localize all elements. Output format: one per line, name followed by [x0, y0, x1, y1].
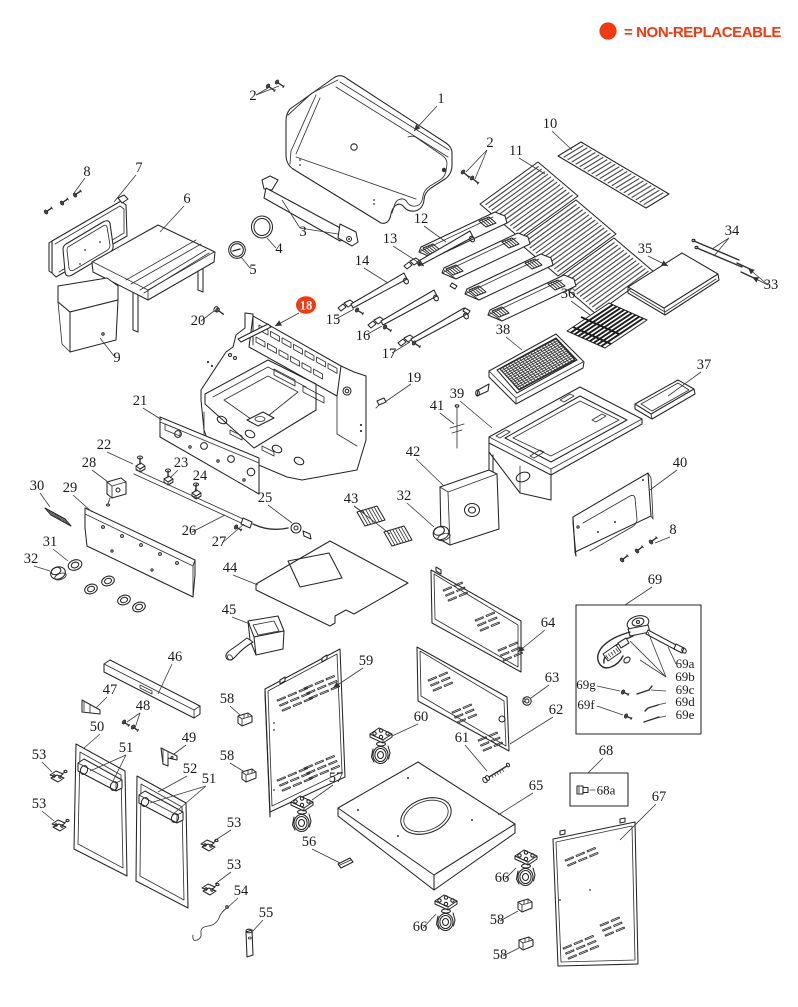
- svg-text:51: 51: [202, 771, 217, 787]
- svg-text:58: 58: [493, 947, 508, 963]
- svg-text:41: 41: [430, 398, 445, 414]
- svg-text:19: 19: [407, 370, 422, 386]
- svg-text:65: 65: [529, 778, 544, 794]
- svg-text:68: 68: [599, 743, 614, 759]
- svg-text:14: 14: [355, 253, 370, 269]
- svg-text:18: 18: [300, 299, 313, 313]
- svg-text:30: 30: [30, 478, 45, 494]
- svg-text:27: 27: [212, 534, 227, 550]
- svg-text:50: 50: [90, 719, 105, 735]
- svg-text:51: 51: [119, 740, 134, 756]
- svg-text:48: 48: [136, 698, 151, 714]
- svg-text:53: 53: [32, 796, 47, 812]
- svg-text:24: 24: [193, 468, 208, 484]
- svg-text:3: 3: [299, 224, 306, 240]
- svg-text:53: 53: [32, 747, 47, 763]
- svg-text:69g: 69g: [576, 677, 596, 692]
- svg-text:15: 15: [326, 312, 341, 328]
- svg-text:42: 42: [406, 444, 421, 460]
- svg-text:60: 60: [414, 709, 429, 725]
- svg-text:23: 23: [174, 455, 189, 471]
- svg-text:56: 56: [302, 834, 317, 850]
- svg-text:16: 16: [356, 328, 371, 344]
- svg-text:33: 33: [764, 277, 779, 293]
- svg-text:28: 28: [82, 455, 97, 471]
- svg-text:25: 25: [258, 490, 273, 506]
- svg-text:69f: 69f: [577, 697, 595, 712]
- svg-text:66: 66: [495, 870, 510, 886]
- svg-text:8: 8: [669, 522, 676, 538]
- svg-text:2: 2: [486, 135, 493, 151]
- svg-text:68a: 68a: [597, 783, 616, 798]
- svg-text:2: 2: [249, 88, 256, 104]
- svg-text:7: 7: [135, 160, 142, 176]
- svg-text:11: 11: [509, 143, 523, 159]
- svg-text:61: 61: [455, 730, 470, 746]
- svg-text:39: 39: [450, 386, 465, 402]
- svg-text:57: 57: [329, 770, 344, 786]
- svg-text:53: 53: [227, 815, 242, 831]
- svg-text:4: 4: [275, 241, 283, 257]
- svg-text:64: 64: [541, 615, 556, 631]
- svg-text:35: 35: [638, 241, 653, 257]
- svg-text:47: 47: [103, 682, 118, 698]
- svg-text:13: 13: [383, 231, 398, 247]
- svg-text:= NON-REPLACEABLE: = NON-REPLACEABLE: [624, 24, 781, 41]
- svg-text:1: 1: [437, 91, 444, 107]
- svg-text:32: 32: [24, 551, 39, 567]
- svg-text:40: 40: [673, 455, 688, 471]
- svg-text:20: 20: [191, 313, 206, 329]
- svg-text:17: 17: [382, 346, 397, 362]
- svg-text:58: 58: [220, 748, 235, 764]
- svg-text:58: 58: [490, 912, 505, 928]
- svg-text:22: 22: [97, 437, 112, 453]
- svg-text:53: 53: [227, 857, 242, 873]
- svg-text:10: 10: [543, 116, 558, 132]
- svg-text:59: 59: [359, 653, 374, 669]
- svg-text:46: 46: [168, 649, 183, 665]
- svg-text:69e: 69e: [676, 707, 695, 722]
- svg-text:43: 43: [344, 491, 359, 507]
- svg-text:69: 69: [648, 572, 663, 588]
- svg-text:9: 9: [113, 350, 120, 366]
- svg-text:36: 36: [561, 286, 576, 302]
- svg-text:6: 6: [183, 191, 190, 207]
- svg-text:45: 45: [222, 602, 237, 618]
- svg-text:49: 49: [182, 730, 197, 746]
- svg-text:67: 67: [652, 789, 667, 805]
- svg-text:62: 62: [549, 702, 564, 718]
- svg-text:8: 8: [83, 164, 90, 180]
- svg-text:38: 38: [496, 322, 511, 338]
- svg-text:12: 12: [414, 211, 429, 227]
- svg-text:44: 44: [223, 560, 238, 576]
- svg-text:32: 32: [397, 488, 412, 504]
- svg-text:31: 31: [43, 534, 58, 550]
- svg-text:52: 52: [183, 761, 198, 777]
- svg-text:54: 54: [234, 883, 249, 899]
- svg-text:21: 21: [133, 393, 148, 409]
- svg-text:58: 58: [220, 691, 235, 707]
- svg-text:63: 63: [545, 670, 560, 686]
- svg-text:37: 37: [697, 357, 712, 373]
- svg-text:34: 34: [725, 223, 740, 239]
- svg-text:29: 29: [63, 480, 78, 496]
- svg-text:55: 55: [259, 905, 274, 921]
- svg-text:26: 26: [182, 523, 197, 539]
- svg-text:5: 5: [249, 262, 256, 278]
- svg-text:66: 66: [413, 919, 428, 935]
